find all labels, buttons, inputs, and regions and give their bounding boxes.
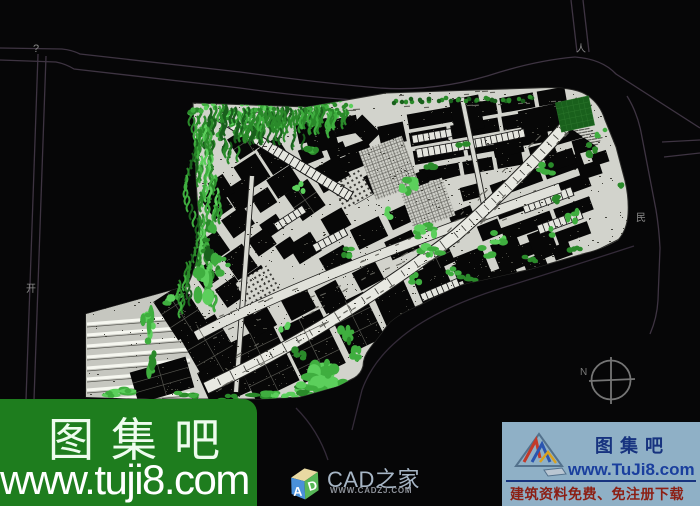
svg-text:人: 人	[576, 43, 586, 55]
svg-text:N: N	[580, 367, 587, 378]
svg-text:民: 民	[636, 212, 646, 224]
svg-text:开: 开	[26, 284, 36, 295]
svg-text:A: A	[293, 484, 303, 499]
svg-text:?: ?	[33, 43, 39, 55]
